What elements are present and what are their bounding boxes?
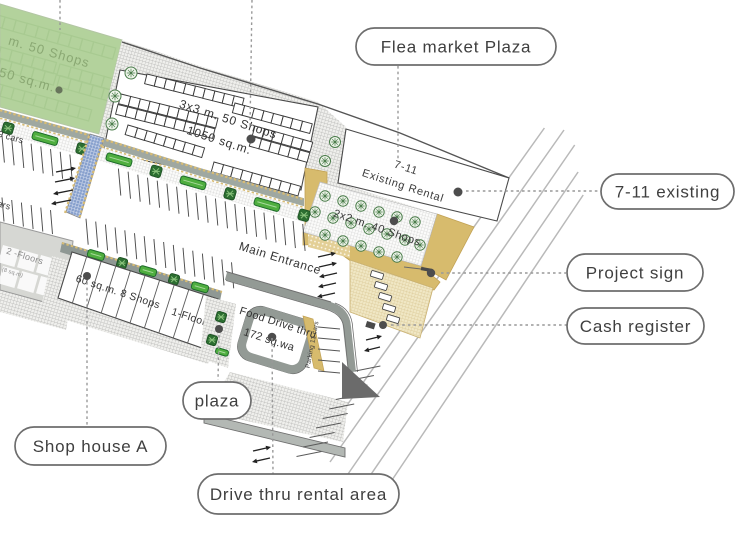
svg-text:7-11 existing: 7-11 existing — [615, 182, 721, 201]
svg-text:Drive thru rental area: Drive thru rental area — [210, 485, 387, 504]
svg-text:Cash register: Cash register — [580, 317, 692, 336]
svg-text:Shop house A: Shop house A — [33, 437, 148, 456]
svg-text:Flea market Plaza: Flea market Plaza — [381, 37, 532, 56]
svg-text:Project sign: Project sign — [586, 263, 684, 282]
svg-text:plaza: plaza — [195, 391, 240, 410]
